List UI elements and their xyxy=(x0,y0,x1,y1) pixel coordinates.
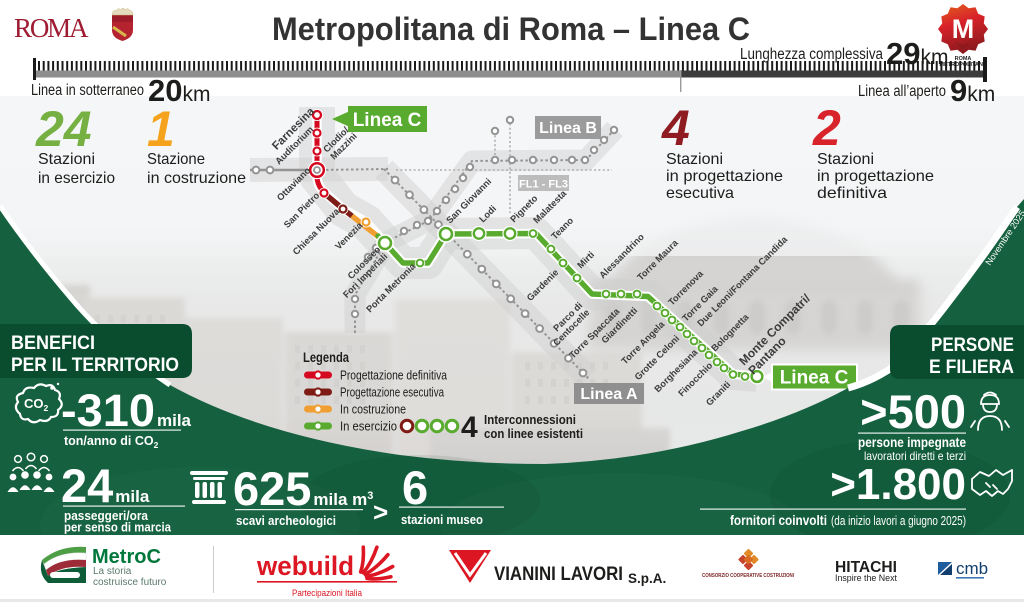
svg-text:scavi archeologici: scavi archeologici xyxy=(236,513,336,528)
svg-text:Linea C: Linea C xyxy=(353,110,422,131)
svg-text:BENEFICI: BENEFICI xyxy=(11,332,95,354)
svg-text:FL1 - FL3: FL1 - FL3 xyxy=(519,179,568,191)
svg-text:fornitori coinvolti: fornitori coinvolti xyxy=(730,512,827,528)
svg-text:per senso di marcia: per senso di marcia xyxy=(64,520,172,535)
svg-text:(da inizio lavori a giugno 202: (da inizio lavori a giugno 2025) xyxy=(831,513,966,528)
svg-text:MetroC: MetroC xyxy=(92,546,161,568)
svg-text:>1.800: >1.800 xyxy=(830,460,966,509)
svg-text:Progettazione definitiva: Progettazione definitiva xyxy=(340,369,447,383)
svg-text:Progettazione esecutiva: Progettazione esecutiva xyxy=(340,386,444,400)
svg-text:costruisce futuro: costruisce futuro xyxy=(93,577,167,588)
svg-text:Metropolitana di Roma – Linea: Metropolitana di Roma – Linea C xyxy=(272,11,750,47)
svg-text:Stazione: Stazione xyxy=(147,151,205,168)
svg-text:ton/anno di CO2: ton/anno di CO2 xyxy=(64,434,159,450)
svg-text:Linea B: Linea B xyxy=(539,120,597,137)
svg-text:stazioni museo: stazioni museo xyxy=(401,512,483,527)
svg-text:PER IL TERRITORIO: PER IL TERRITORIO xyxy=(11,354,179,376)
svg-text:ROMA: ROMA xyxy=(14,13,90,43)
svg-text:VIANINI LAVORI: VIANINI LAVORI xyxy=(494,564,623,585)
svg-text:PERSONE: PERSONE xyxy=(931,334,1014,356)
svg-text:definitiva: definitiva xyxy=(817,185,887,202)
svg-text:in costruzione: in costruzione xyxy=(147,170,246,187)
svg-text:in progettazione: in progettazione xyxy=(666,168,783,185)
svg-text:In costruzione: In costruzione xyxy=(340,403,406,417)
svg-text:E FILIERA: E FILIERA xyxy=(929,356,1014,378)
svg-text:4: 4 xyxy=(661,100,690,156)
svg-text:La storia: La storia xyxy=(93,566,132,577)
svg-text:Inspire the Next: Inspire the Next xyxy=(835,573,897,584)
svg-text:con linee esistenti: con linee esistenti xyxy=(484,427,583,441)
svg-text:Lunghezza complessiva: Lunghezza complessiva xyxy=(740,46,883,63)
svg-text:Stazioni: Stazioni xyxy=(666,151,723,168)
svg-text:Legenda: Legenda xyxy=(303,350,349,365)
svg-text:4: 4 xyxy=(461,411,478,444)
svg-text:Interconnessioni: Interconnessioni xyxy=(484,413,576,427)
svg-text:1: 1 xyxy=(147,101,175,157)
svg-text:Stazioni: Stazioni xyxy=(38,151,95,168)
svg-text:persone impegnate: persone impegnate xyxy=(858,434,966,450)
svg-text:S.p.A.: S.p.A. xyxy=(628,571,666,586)
svg-text:2: 2 xyxy=(812,100,841,156)
svg-text:24: 24 xyxy=(35,101,92,157)
svg-text:cmb: cmb xyxy=(956,559,988,578)
svg-text:Linea in sotterraneo: Linea in sotterraneo xyxy=(31,82,144,99)
svg-text:esecutiva: esecutiva xyxy=(666,185,734,202)
svg-text:Stazioni: Stazioni xyxy=(817,151,874,168)
svg-text:in progettazione: in progettazione xyxy=(817,168,934,185)
svg-text:>500: >500 xyxy=(860,385,966,438)
svg-text:>: > xyxy=(373,497,388,527)
svg-text:Linea all’aperto: Linea all’aperto xyxy=(858,83,946,100)
svg-text:6: 6 xyxy=(402,461,428,514)
svg-text:webuild: webuild xyxy=(256,551,354,581)
svg-text:Linea A: Linea A xyxy=(580,386,638,403)
svg-text:Partecipazioni Italia: Partecipazioni Italia xyxy=(292,588,362,598)
svg-text:M: M xyxy=(952,14,975,44)
svg-text:in esercizio: in esercizio xyxy=(38,170,115,187)
svg-text:In esercizio: In esercizio xyxy=(340,420,397,434)
svg-text:Linea C: Linea C xyxy=(780,368,849,389)
svg-text:CONSORZIO COOPERATIVE COSTRUZI: CONSORZIO COOPERATIVE COSTRUZIONI xyxy=(702,573,795,579)
